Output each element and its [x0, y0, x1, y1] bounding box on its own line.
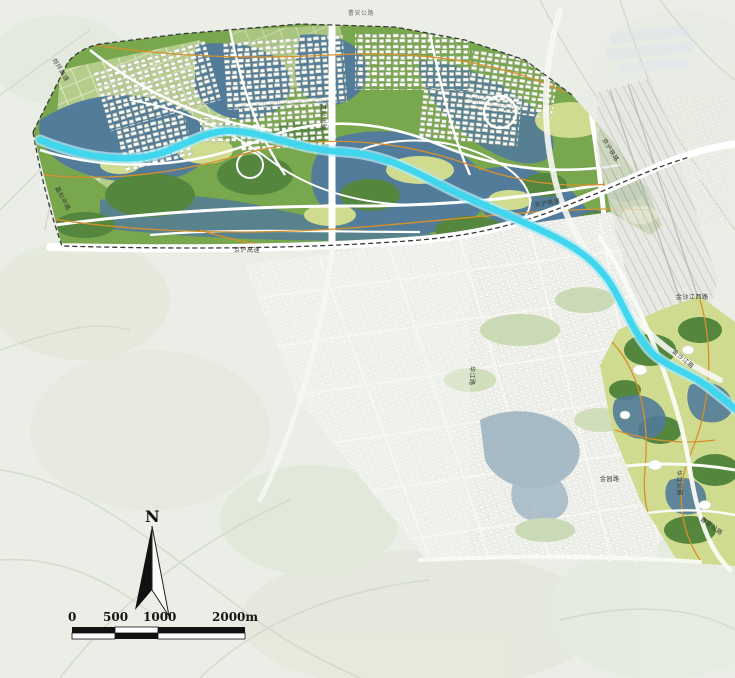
road-label: 华江路 [468, 366, 476, 386]
road-label: 金园路 [600, 475, 620, 483]
scale-tick-label: 0 [68, 610, 76, 624]
road-label: 华江公路 [675, 470, 684, 496]
road-label: 金沙江西路 [676, 293, 709, 301]
scale-tick-label: 500 [103, 610, 128, 624]
map-canvas: 曹安公路 郊环高速 嘉松中路 嘉松北路 京沪高速 京沪高速 京沪铁路 金沙江西路… [0, 0, 735, 678]
masterplan-map: 曹安公路 郊环高速 嘉松中路 嘉松北路 京沪高速 京沪高速 京沪铁路 金沙江西路… [0, 0, 735, 678]
road-label: 京沪高速 [234, 246, 260, 254]
scale-bar-segments [72, 627, 245, 639]
road-label: 曹安公路 [348, 9, 374, 17]
road-label: 嘉松北路 [319, 104, 327, 130]
scale-tick-label: 2000m [212, 610, 258, 624]
scale-tick-label: 1000 [143, 610, 176, 624]
north-arrow-label: N [145, 507, 160, 526]
